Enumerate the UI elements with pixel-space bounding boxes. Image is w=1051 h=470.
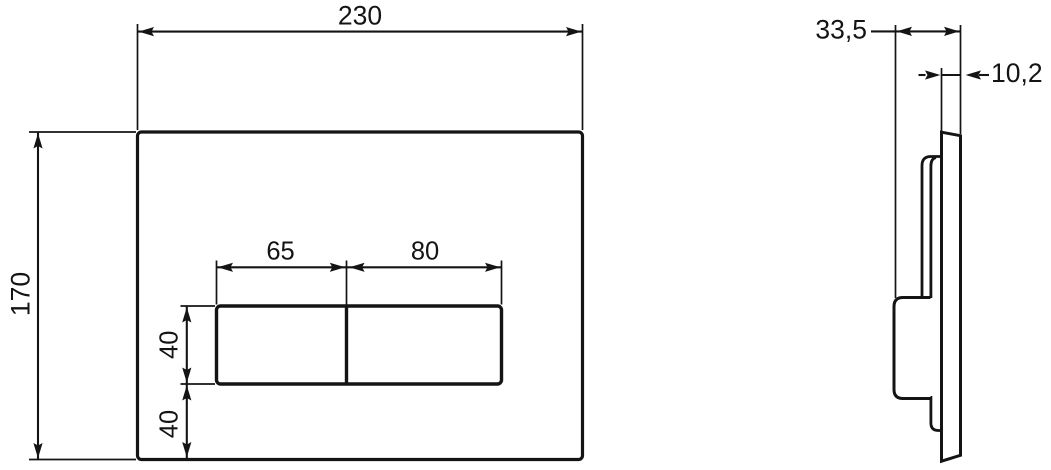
svg-text:80: 80 bbox=[411, 237, 439, 265]
svg-text:40: 40 bbox=[155, 410, 183, 438]
svg-text:230: 230 bbox=[338, 1, 382, 31]
svg-text:65: 65 bbox=[266, 237, 294, 265]
svg-text:170: 170 bbox=[5, 272, 35, 316]
svg-text:10,2: 10,2 bbox=[991, 58, 1043, 88]
svg-text:33,5: 33,5 bbox=[815, 14, 867, 44]
svg-text:40: 40 bbox=[155, 331, 183, 359]
